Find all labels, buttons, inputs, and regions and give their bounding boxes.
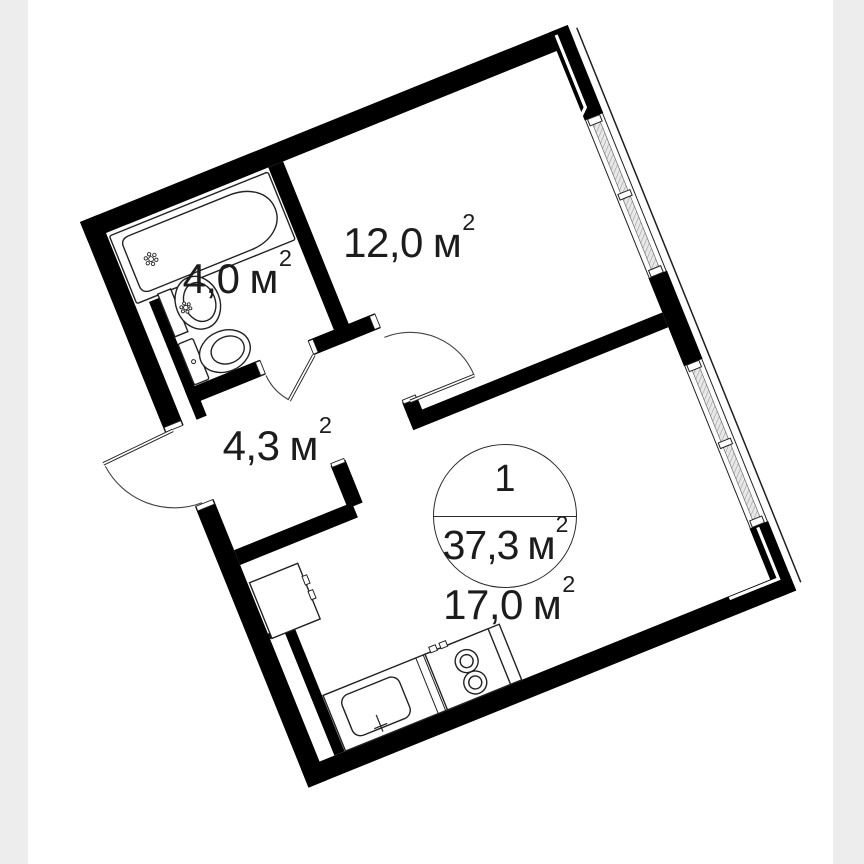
room-area-label-hallway: 4,3м2 — [223, 422, 332, 470]
total-area: 37,3м2 — [434, 522, 576, 569]
apartment-summary-badge: 1 37,3м2 — [433, 444, 577, 588]
total-area-sup: 2 — [556, 511, 568, 537]
area-sup: 2 — [462, 209, 475, 235]
floor-plan — [80, 25, 796, 788]
window-icon-upper — [585, 113, 666, 278]
area-unit: м — [289, 422, 317, 469]
room-area-label-bedroom: 12,0м2 — [343, 219, 475, 267]
total-area-value: 37,3 — [443, 522, 519, 568]
area-value: 17,0 — [443, 581, 523, 628]
left-margin-band — [0, 0, 28, 864]
plan-drawing — [0, 0, 844, 858]
area-unit: м — [249, 255, 277, 302]
wall-hallway-right — [331, 460, 363, 509]
area-sup: 2 — [319, 412, 332, 438]
window-icon-lower — [685, 359, 768, 528]
wall-top — [80, 25, 575, 241]
total-area-unit: м — [527, 522, 554, 568]
area-sup: 2 — [279, 245, 292, 271]
wall-interior-main — [407, 312, 668, 430]
area-value: 4,0 — [183, 255, 240, 302]
area-unit: м — [533, 581, 561, 628]
area-value: 4,3 — [223, 422, 280, 469]
bathroom-door — [266, 355, 327, 405]
rooms-count: 1 — [434, 458, 576, 501]
floor-plan-screenshot: 4,0м2 12,0м2 4,3м2 17,0м2 1 37,3м2 — [0, 0, 864, 864]
door-arc-icon — [384, 312, 474, 402]
right-margin-band — [833, 0, 864, 864]
entrance-door — [101, 430, 202, 531]
room-area-label-bathroom: 4,0м2 — [183, 255, 292, 303]
area-sup: 2 — [562, 571, 575, 597]
area-value: 12,0 — [343, 219, 423, 266]
door-arc-icon — [266, 371, 289, 404]
facade-line — [576, 27, 801, 582]
door-arc-icon — [105, 438, 202, 531]
room-area-label-kitchen-living: 17,0м2 — [443, 581, 575, 629]
bedroom-door — [384, 312, 474, 402]
area-unit: м — [433, 219, 461, 266]
wall-hallway-bottom — [234, 503, 358, 565]
